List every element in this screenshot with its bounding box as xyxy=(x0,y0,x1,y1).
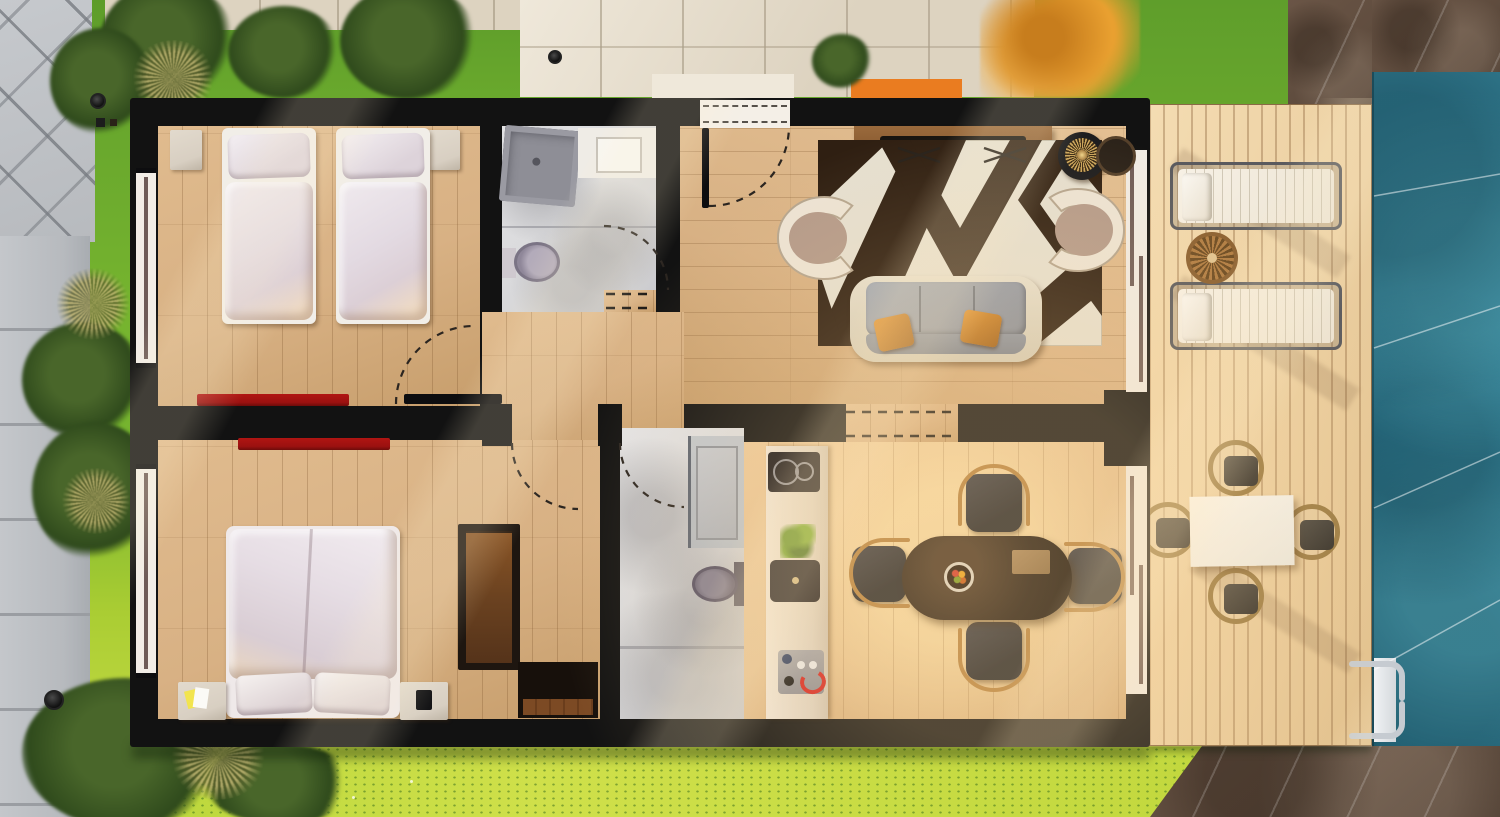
bedroom-1-door-leaf xyxy=(404,394,502,404)
coffee-machine xyxy=(778,650,824,694)
window-bedroom-2 xyxy=(136,464,156,678)
garden-fixture xyxy=(96,118,105,127)
bed-duvet xyxy=(229,529,397,679)
brown-stone-patio-top xyxy=(1372,0,1500,74)
red-runner-rug xyxy=(238,438,390,450)
toilet xyxy=(514,242,560,282)
single-bed xyxy=(222,128,316,324)
dining-chair xyxy=(966,474,1022,532)
corner-shower xyxy=(499,125,581,207)
interior-wall xyxy=(482,404,512,446)
sun-lounger xyxy=(1170,282,1342,350)
interior-wall-pillar xyxy=(1104,390,1148,466)
shrub xyxy=(228,6,340,98)
dining-table xyxy=(902,536,1072,620)
ornamental-grass xyxy=(55,268,131,340)
wicker-side-table xyxy=(1186,232,1238,284)
bed-duvet xyxy=(339,182,427,320)
bed-pillow xyxy=(313,672,391,716)
nightstand xyxy=(178,682,226,720)
red-runner-rug xyxy=(197,394,349,406)
papers xyxy=(193,687,210,709)
vanity-with-sink xyxy=(578,128,656,178)
single-bed xyxy=(336,128,430,324)
garden-spotlight xyxy=(90,93,106,109)
fruit-bowl xyxy=(944,562,974,592)
swimming-pool xyxy=(1372,72,1500,752)
dining-chair xyxy=(966,622,1022,680)
kitchen-sink xyxy=(770,560,820,602)
brown-stone-patio-top xyxy=(1288,0,1374,116)
shower-tray xyxy=(696,446,738,540)
shrub xyxy=(22,322,144,438)
sliding-door-dining-to-deck xyxy=(1126,466,1147,694)
bed-pillow xyxy=(341,133,424,180)
entry-door-threshold xyxy=(700,100,790,128)
cooktop xyxy=(768,452,820,492)
wardrobe xyxy=(458,524,520,670)
serving-tray xyxy=(1012,550,1050,574)
bed-duvet xyxy=(225,182,313,320)
entry-door-leaf xyxy=(702,128,709,208)
brown-stone-patio-bottom xyxy=(1150,746,1500,817)
dining-chair xyxy=(852,546,906,602)
garden-fixture xyxy=(110,119,117,126)
dining-chair xyxy=(1068,548,1122,604)
bed-pillow xyxy=(227,133,310,180)
nightstand xyxy=(170,130,202,170)
pool-ladder xyxy=(1374,658,1396,742)
potted-plant xyxy=(780,524,816,558)
ornamental-grass xyxy=(60,468,132,534)
sun-lounger xyxy=(1170,162,1342,230)
chest xyxy=(518,662,598,718)
outdoor-dining-table xyxy=(1189,495,1294,567)
garden-spotlight xyxy=(44,690,64,710)
autumn-tree xyxy=(980,0,1140,98)
double-bed xyxy=(226,526,400,718)
wicker-chair xyxy=(1208,440,1264,496)
corridor-floor xyxy=(482,312,684,446)
entry-walkway xyxy=(652,74,794,101)
open-passage-floor xyxy=(846,404,958,446)
wicker-chair xyxy=(1208,568,1264,624)
sliding-door-living-to-deck xyxy=(1126,150,1147,392)
lawn-flower xyxy=(410,780,413,783)
window-bedroom-1 xyxy=(136,168,156,368)
toilet xyxy=(692,566,738,602)
nightstand xyxy=(400,682,448,720)
bed-pillow xyxy=(235,672,313,716)
throw-pillow xyxy=(959,309,1002,348)
interior-wall xyxy=(598,404,622,446)
floor-plan-render xyxy=(0,0,1500,817)
garden-spotlight xyxy=(548,50,562,64)
round-side-table xyxy=(1096,136,1136,176)
bathroom-1-door-gap xyxy=(604,290,656,312)
shrub xyxy=(812,34,872,88)
phone xyxy=(416,690,432,710)
nightstand xyxy=(428,130,460,170)
